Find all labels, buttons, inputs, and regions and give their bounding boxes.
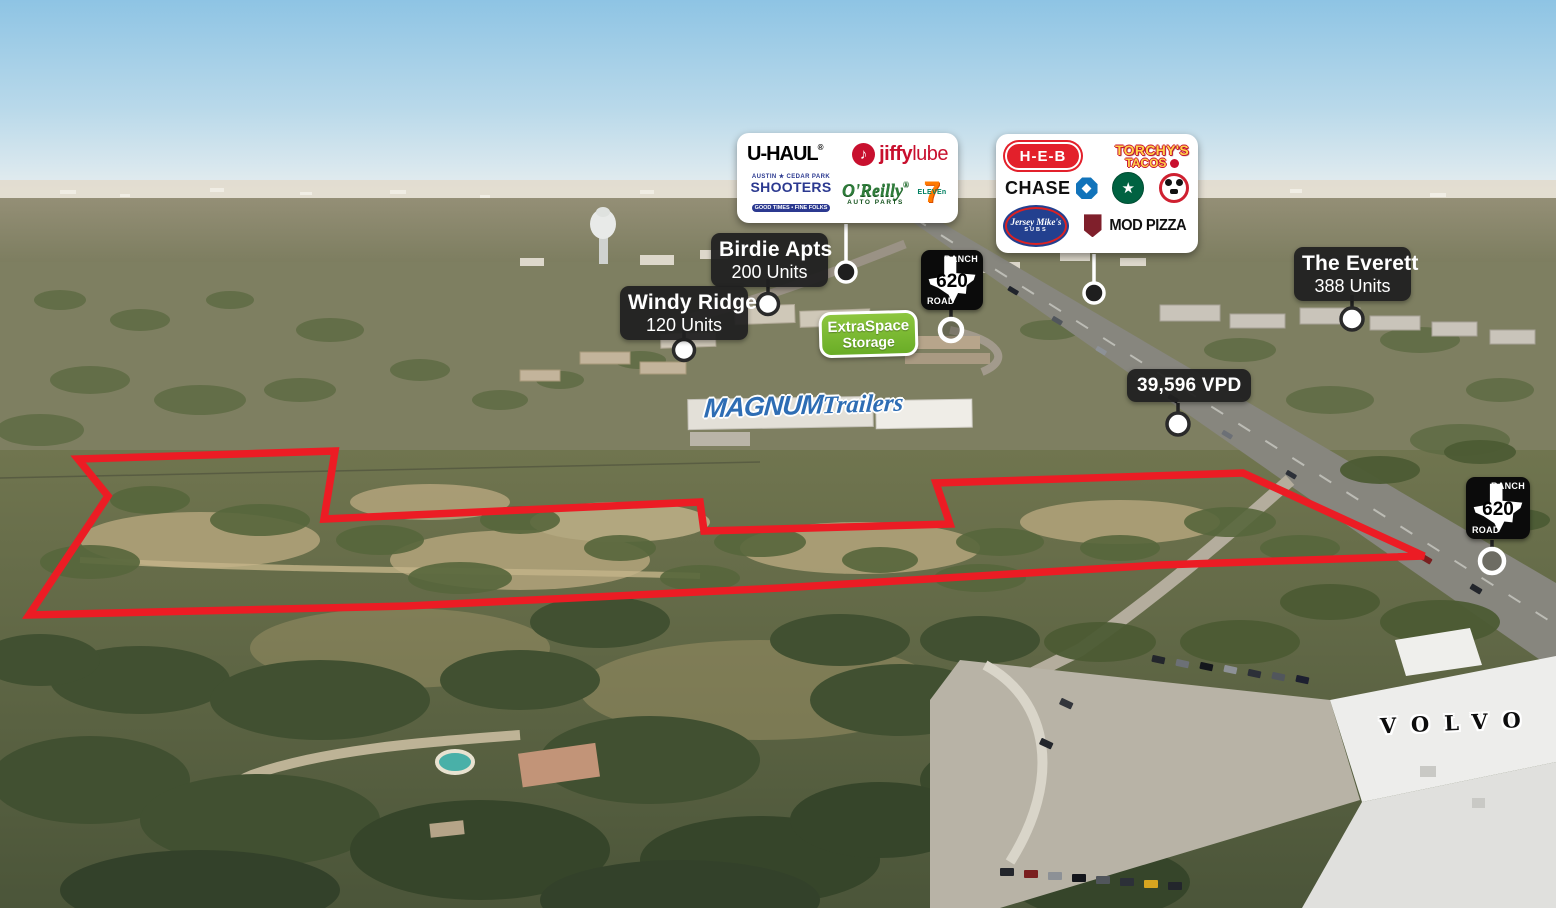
left-panel-dot bbox=[836, 262, 856, 282]
chase-octagon-icon bbox=[1076, 177, 1098, 199]
right-panel-dot bbox=[1084, 283, 1104, 303]
tenant-logo-panel-left: U-HAUL® ♪ jiffylube AUSTIN ★ CEDAR PARK … bbox=[737, 133, 958, 223]
uhaul-logo: U-HAUL® bbox=[747, 144, 823, 165]
panda-express-logo-icon bbox=[1159, 173, 1189, 203]
shooters-logo: AUSTIN ★ CEDAR PARK SHOOTERS GOOD TIMES … bbox=[747, 174, 835, 214]
jiffy-lube-icon: ♪ bbox=[852, 143, 875, 166]
starbucks-logo-icon: ★ bbox=[1112, 172, 1144, 204]
torchys-devil-icon bbox=[1170, 159, 1179, 168]
badge-windy-ridge: Windy Ridge 120 Units bbox=[620, 286, 748, 340]
windy-dot bbox=[674, 340, 695, 361]
sign-north-ring bbox=[940, 319, 962, 341]
chase-logo: CHASE bbox=[1005, 177, 1098, 199]
traffic-dot bbox=[1167, 413, 1189, 435]
jersey-mikes-logo: Jersey Mike's SUBS bbox=[1005, 207, 1067, 245]
ranch-road-620-sign-south: RANCH 620 ROAD bbox=[1466, 477, 1530, 539]
mod-pizza-logo: MOD PIZZA bbox=[1084, 214, 1190, 237]
badge-the-everett: The Everett 388 Units bbox=[1294, 247, 1411, 301]
everett-dot bbox=[1341, 308, 1363, 330]
badge-traffic-count: 39,596 VPD bbox=[1127, 369, 1251, 402]
mod-pizza-shield-icon bbox=[1084, 214, 1102, 237]
jiffy-lube-logo: ♪ jiffylube bbox=[852, 143, 948, 166]
heb-logo: H-E-B bbox=[1005, 142, 1081, 170]
tenant-logo-panel-right: H-E-B TORCHY'S TACOS CHASE ★ Jersey Mike… bbox=[996, 134, 1198, 253]
birdie-dot bbox=[758, 294, 779, 315]
badge-birdie-apts: Birdie Apts 200 Units bbox=[711, 233, 828, 287]
extraspace-storage-sign: ExtraSpace Storage bbox=[818, 310, 918, 359]
aerial-site-map: U-HAUL® ♪ jiffylube AUSTIN ★ CEDAR PARK … bbox=[0, 0, 1556, 908]
seven-eleven-logo: 7 ELEVEn bbox=[916, 176, 948, 210]
torchys-tacos-logo: TORCHY'S TACOS bbox=[1115, 143, 1189, 169]
property-boundary-outline bbox=[29, 451, 1424, 615]
ranch-road-620-sign-north: RANCH 620 ROAD bbox=[921, 250, 983, 310]
sign-south-ring bbox=[1480, 549, 1504, 573]
oreilly-logo: O'Reilly® AUTO PARTS bbox=[839, 181, 913, 207]
